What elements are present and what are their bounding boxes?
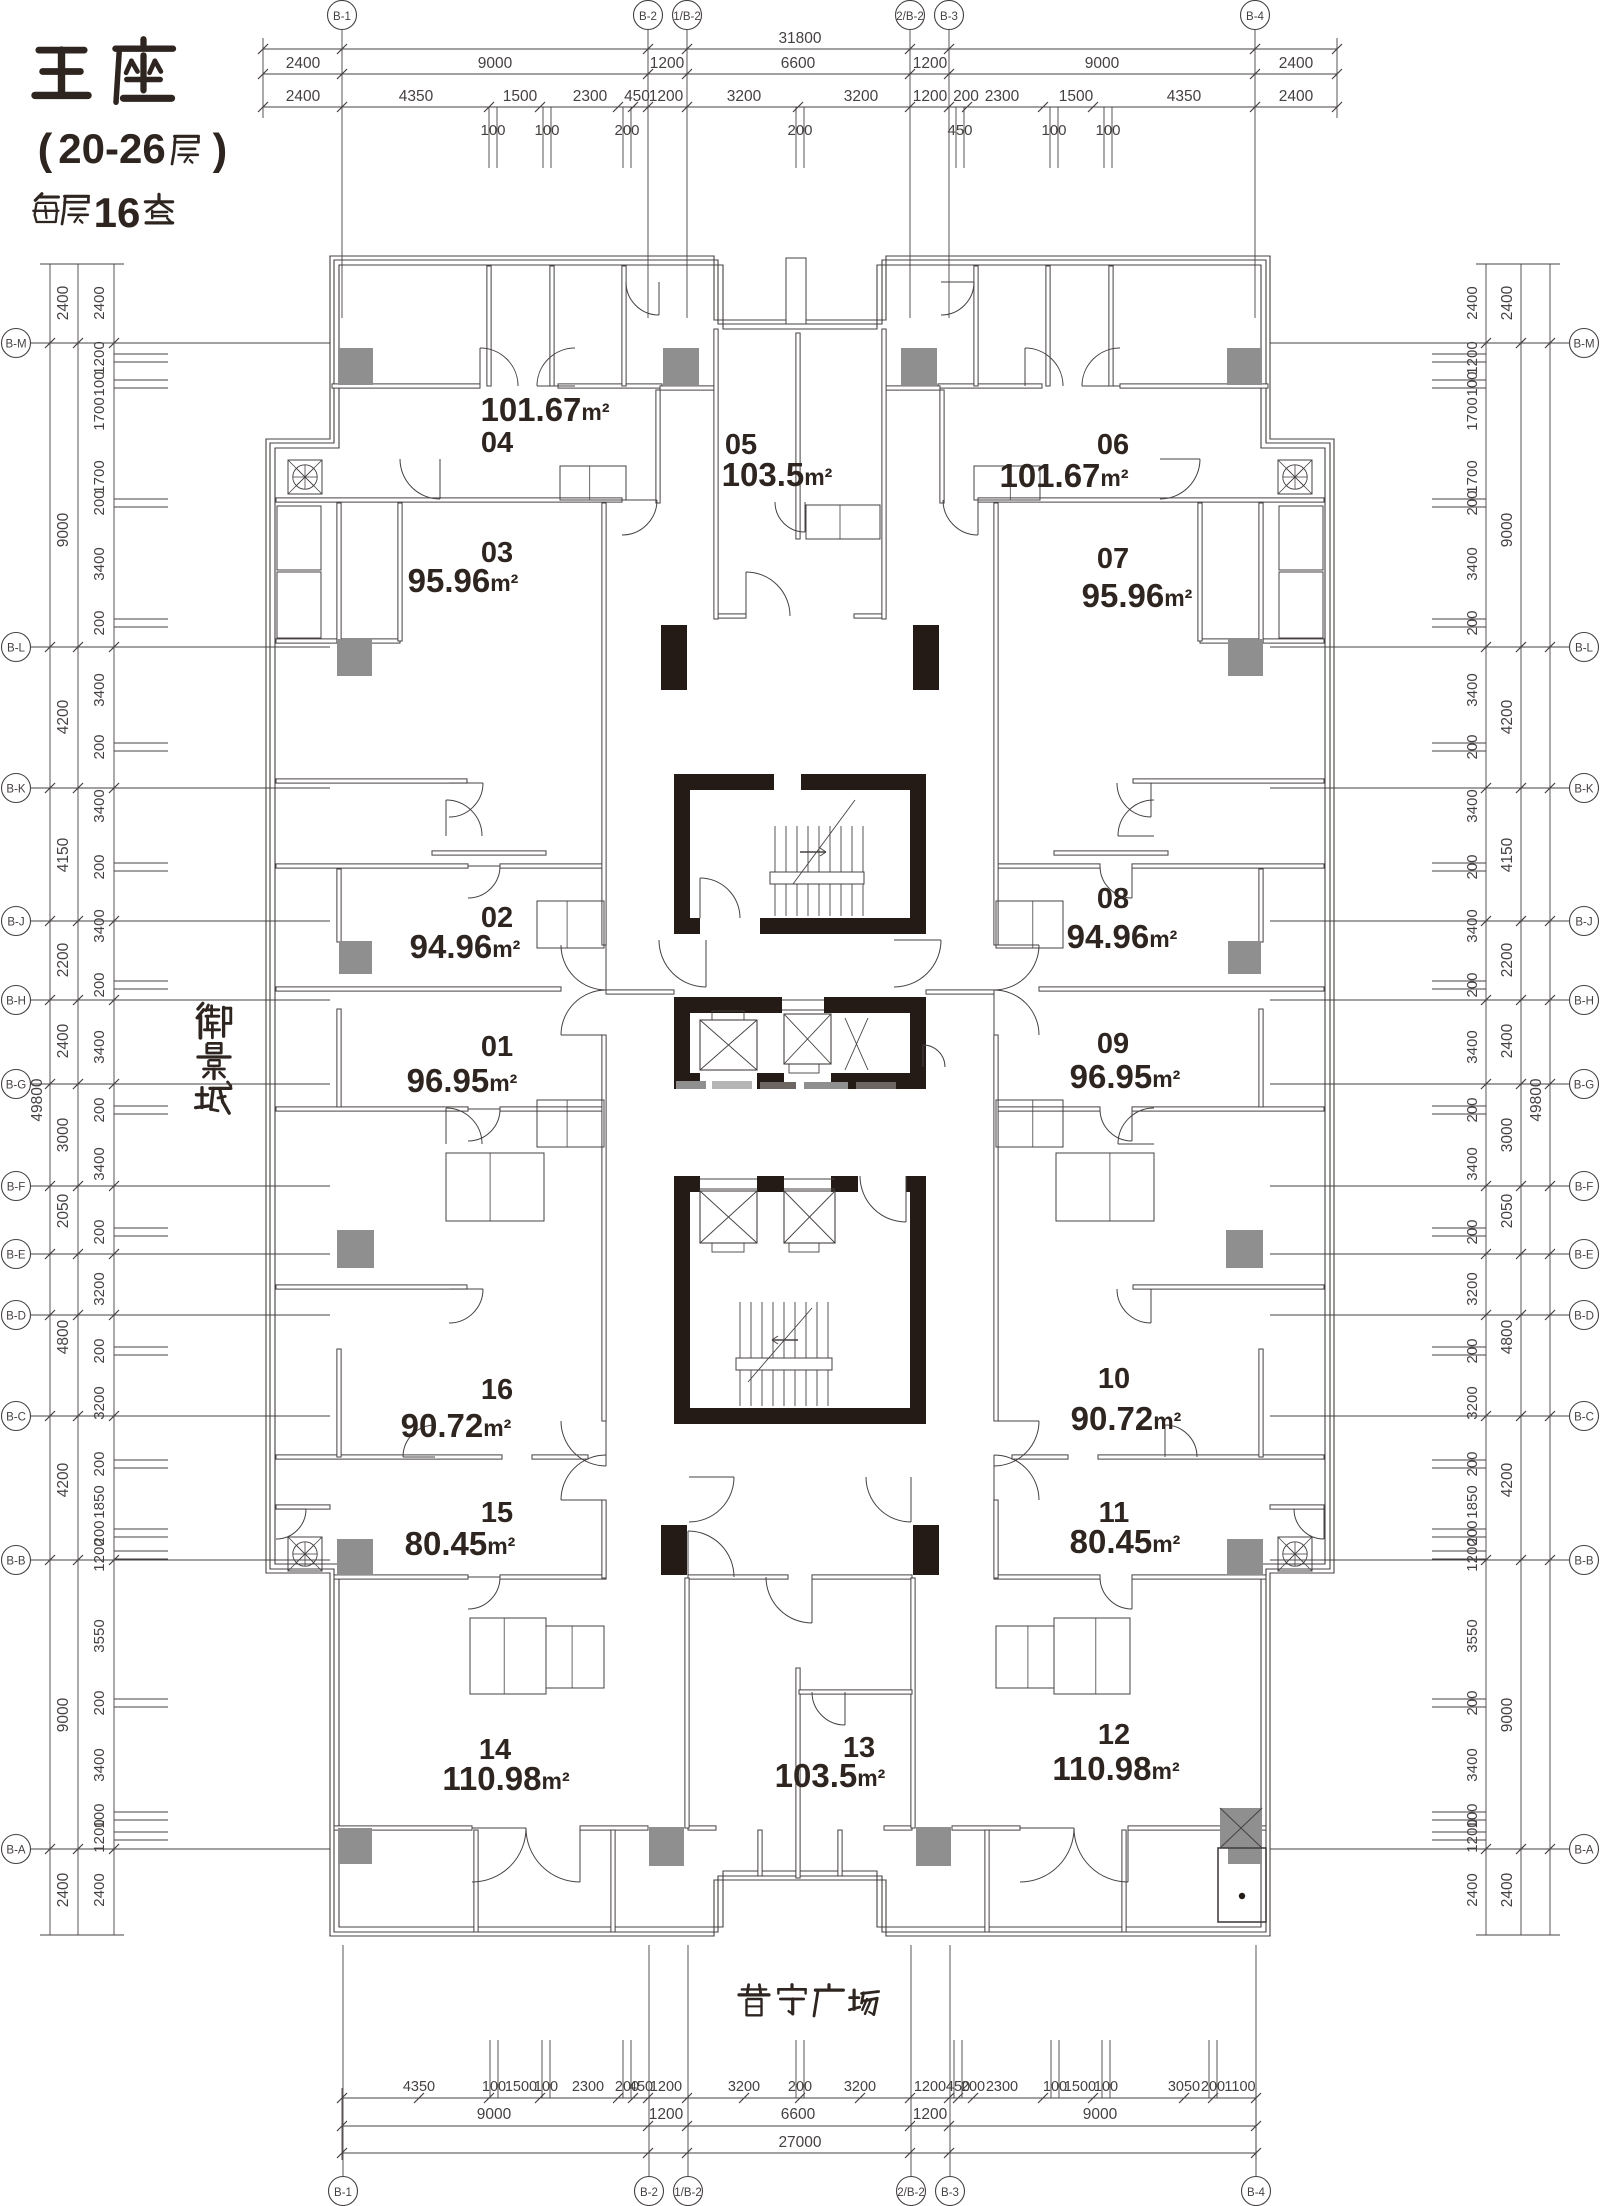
svg-text:200: 200	[91, 1219, 108, 1244]
svg-text:B-G: B-G	[1574, 1080, 1595, 1092]
svg-text:08: 08	[1097, 883, 1129, 915]
svg-text:4350: 4350	[1167, 88, 1202, 105]
svg-text:3400: 3400	[91, 1030, 108, 1063]
svg-text:200: 200	[953, 88, 979, 105]
svg-text:4150: 4150	[1499, 837, 1516, 872]
svg-text:4350: 4350	[403, 2079, 435, 2095]
svg-text:1700: 1700	[1464, 460, 1481, 493]
svg-text:200: 200	[91, 1690, 108, 1715]
svg-text:2400: 2400	[1464, 1873, 1481, 1906]
svg-text:200: 200	[788, 2079, 812, 2095]
svg-text:200: 200	[1464, 972, 1481, 997]
svg-text:1200: 1200	[1464, 341, 1481, 374]
svg-text:2200: 2200	[1499, 942, 1516, 977]
svg-text:4200: 4200	[1499, 1462, 1516, 1497]
svg-text:3200: 3200	[728, 2079, 760, 2095]
svg-text:B-J: B-J	[1575, 917, 1592, 929]
svg-text:1200: 1200	[91, 1538, 108, 1571]
svg-text:2400: 2400	[55, 285, 72, 320]
svg-text:B-L: B-L	[1575, 643, 1594, 655]
svg-text:B-M: B-M	[1573, 339, 1594, 351]
svg-text:9000: 9000	[1083, 2106, 1118, 2123]
svg-text:200: 200	[961, 2079, 985, 2095]
svg-text:100: 100	[1041, 122, 1066, 139]
svg-text:100: 100	[1095, 122, 1120, 139]
svg-text:2300: 2300	[985, 88, 1020, 105]
svg-text:B-H: B-H	[6, 996, 26, 1008]
svg-text:2/B-2: 2/B-2	[896, 11, 924, 23]
svg-text:1200: 1200	[650, 55, 685, 72]
svg-text:B-1: B-1	[334, 2187, 352, 2199]
svg-text:200: 200	[91, 972, 108, 997]
svg-text:1200: 1200	[649, 88, 684, 105]
svg-text:B-H: B-H	[1574, 996, 1594, 1008]
svg-text:4800: 4800	[55, 1319, 72, 1354]
svg-text:3400: 3400	[1464, 1030, 1481, 1063]
svg-text:3200: 3200	[1464, 1386, 1481, 1419]
svg-text:2300: 2300	[573, 88, 608, 105]
svg-text:10: 10	[1098, 1363, 1130, 1395]
svg-text:16: 16	[94, 189, 141, 236]
svg-text:100: 100	[1464, 371, 1481, 396]
svg-text:200: 200	[1464, 490, 1481, 515]
svg-text:200: 200	[1464, 734, 1481, 759]
svg-text:1200: 1200	[913, 88, 948, 105]
svg-text:B-4: B-4	[1247, 2187, 1266, 2199]
svg-text:100: 100	[480, 122, 505, 139]
svg-text:2400: 2400	[91, 1873, 108, 1906]
svg-text:3200: 3200	[1464, 1272, 1481, 1305]
svg-text:9000: 9000	[1499, 512, 1516, 547]
svg-text:1500: 1500	[1064, 2079, 1096, 2095]
svg-text:4350: 4350	[399, 88, 434, 105]
svg-text:2/B-2: 2/B-2	[897, 2187, 925, 2199]
svg-text:200: 200	[1464, 854, 1481, 879]
svg-text:): )	[213, 125, 228, 174]
svg-text:1200: 1200	[913, 2106, 948, 2123]
svg-text:3400: 3400	[1464, 673, 1481, 706]
svg-text:B-E: B-E	[1574, 1250, 1594, 1262]
svg-text:100: 100	[1094, 2079, 1118, 2095]
svg-text:3200: 3200	[727, 88, 762, 105]
svg-text:3050: 3050	[1168, 2079, 1200, 2095]
svg-text:2300: 2300	[986, 2079, 1018, 2095]
svg-text:3200: 3200	[844, 2079, 876, 2095]
svg-text:200: 200	[91, 490, 108, 515]
svg-text:2400: 2400	[1464, 286, 1481, 319]
svg-text:B-E: B-E	[6, 1250, 26, 1262]
svg-text:16: 16	[481, 1374, 513, 1406]
svg-text:100: 100	[91, 371, 108, 396]
svg-text:450: 450	[947, 122, 972, 139]
svg-text:2400: 2400	[1499, 1023, 1516, 1058]
svg-text:2200: 2200	[55, 942, 72, 977]
svg-text:2400: 2400	[1279, 55, 1314, 72]
svg-text:1850: 1850	[1464, 1485, 1481, 1518]
svg-text:B-4: B-4	[1246, 11, 1265, 23]
svg-text:3400: 3400	[1464, 909, 1481, 942]
svg-text:27000: 27000	[778, 2134, 821, 2151]
svg-text:09: 09	[1097, 1028, 1129, 1060]
svg-text:1200: 1200	[650, 2079, 682, 2095]
svg-text:3550: 3550	[1464, 1619, 1481, 1652]
svg-text:2400: 2400	[1279, 88, 1314, 105]
svg-text:2050: 2050	[1499, 1193, 1516, 1228]
svg-text:B-1: B-1	[333, 11, 351, 23]
svg-text:B-D: B-D	[6, 1311, 26, 1323]
svg-text:07: 07	[1097, 543, 1129, 575]
svg-text:3400: 3400	[91, 789, 108, 822]
svg-text:B-2: B-2	[639, 11, 657, 23]
svg-text:200: 200	[91, 1451, 108, 1476]
svg-text:200: 200	[91, 734, 108, 759]
svg-text:200: 200	[91, 1097, 108, 1122]
svg-text:1850: 1850	[91, 1485, 108, 1518]
svg-text:1200: 1200	[1464, 1538, 1481, 1571]
svg-text:2400: 2400	[91, 286, 108, 319]
svg-text:06: 06	[1097, 429, 1129, 461]
svg-text:1200: 1200	[91, 1819, 108, 1852]
svg-text:100: 100	[534, 122, 559, 139]
svg-text:3400: 3400	[91, 1147, 108, 1180]
svg-text:2300: 2300	[572, 2079, 604, 2095]
svg-text:B-G: B-G	[6, 1080, 27, 1092]
svg-text:1700: 1700	[1464, 397, 1481, 430]
svg-text:9000: 9000	[1499, 1697, 1516, 1732]
svg-text:9000: 9000	[1085, 55, 1120, 72]
svg-text:49800: 49800	[29, 1078, 46, 1121]
svg-text:1200: 1200	[1464, 1819, 1481, 1852]
svg-text:3400: 3400	[1464, 547, 1481, 580]
svg-text:B-F: B-F	[1575, 1182, 1594, 1194]
svg-text:4150: 4150	[55, 837, 72, 872]
svg-text:2400: 2400	[55, 1872, 72, 1907]
svg-text:200: 200	[1464, 610, 1481, 635]
svg-text:2400: 2400	[286, 88, 321, 105]
svg-text:200: 200	[1464, 1338, 1481, 1363]
svg-text:12: 12	[1098, 1719, 1130, 1751]
svg-text:200: 200	[1464, 1451, 1481, 1476]
svg-text:200: 200	[1464, 1219, 1481, 1244]
svg-text:B-C: B-C	[1574, 1412, 1594, 1424]
svg-text:1/B-2: 1/B-2	[674, 2187, 702, 2199]
svg-text:9000: 9000	[55, 1697, 72, 1732]
svg-text:1700: 1700	[91, 460, 108, 493]
svg-text:B-2: B-2	[640, 2187, 658, 2199]
svg-text:B-J: B-J	[7, 917, 24, 929]
svg-text:3400: 3400	[1464, 1748, 1481, 1781]
svg-text:200: 200	[1464, 1097, 1481, 1122]
svg-text:20-26: 20-26	[58, 125, 165, 172]
svg-text:3400: 3400	[91, 1748, 108, 1781]
svg-text:4200: 4200	[55, 1462, 72, 1497]
svg-text:B-A: B-A	[1574, 1845, 1594, 1857]
svg-text:B-K: B-K	[6, 784, 26, 796]
svg-text:1500: 1500	[1059, 88, 1094, 105]
svg-text:200: 200	[1464, 1690, 1481, 1715]
svg-text:200: 200	[91, 854, 108, 879]
svg-text:9000: 9000	[55, 512, 72, 547]
svg-text:B-M: B-M	[5, 339, 26, 351]
svg-text:9000: 9000	[478, 55, 513, 72]
svg-text:3400: 3400	[91, 547, 108, 580]
svg-text:1200: 1200	[91, 341, 108, 374]
svg-text:3200: 3200	[91, 1272, 108, 1305]
svg-text:(: (	[38, 125, 53, 174]
svg-text:4800: 4800	[1499, 1319, 1516, 1354]
svg-text:3550: 3550	[91, 1619, 108, 1652]
svg-text:1200: 1200	[649, 2106, 684, 2123]
svg-text:200: 200	[1201, 2079, 1225, 2095]
svg-text:200: 200	[614, 122, 639, 139]
svg-text:B-C: B-C	[6, 1412, 26, 1424]
svg-text:B-3: B-3	[941, 2187, 959, 2199]
svg-text:3400: 3400	[91, 909, 108, 942]
svg-text:3400: 3400	[91, 673, 108, 706]
svg-text:B-A: B-A	[6, 1845, 26, 1857]
svg-text:1200: 1200	[914, 2079, 946, 2095]
svg-text:3000: 3000	[55, 1117, 72, 1152]
svg-text:B-3: B-3	[940, 11, 958, 23]
svg-text:1700: 1700	[91, 397, 108, 430]
svg-text:200: 200	[91, 610, 108, 635]
svg-text:31800: 31800	[778, 30, 821, 47]
svg-text:1500: 1500	[505, 2079, 537, 2095]
svg-text:100: 100	[482, 2079, 506, 2095]
svg-text:01: 01	[481, 1031, 513, 1063]
svg-text:B-D: B-D	[1574, 1311, 1594, 1323]
svg-text:B-L: B-L	[7, 643, 26, 655]
svg-text:B-B: B-B	[1574, 1556, 1594, 1568]
svg-text:1500: 1500	[503, 88, 538, 105]
svg-text:B-F: B-F	[7, 1182, 26, 1194]
svg-text:100: 100	[534, 2079, 558, 2095]
svg-text:200: 200	[91, 1338, 108, 1363]
svg-text:1/B-2: 1/B-2	[673, 11, 701, 23]
svg-text:6600: 6600	[781, 2106, 816, 2123]
svg-text:B-K: B-K	[1574, 784, 1594, 796]
svg-text:6600: 6600	[781, 55, 816, 72]
svg-text:2400: 2400	[1499, 1872, 1516, 1907]
svg-text:3200: 3200	[844, 88, 879, 105]
svg-text:3400: 3400	[1464, 789, 1481, 822]
svg-text:2050: 2050	[55, 1193, 72, 1228]
svg-text:1100: 1100	[1224, 2079, 1255, 2095]
svg-text:9000: 9000	[477, 2106, 512, 2123]
svg-text:B-B: B-B	[6, 1556, 26, 1568]
svg-text:3200: 3200	[91, 1386, 108, 1419]
svg-text:200: 200	[787, 122, 812, 139]
svg-text:04: 04	[481, 427, 513, 459]
svg-text:49800: 49800	[1528, 1078, 1545, 1121]
svg-text:1200: 1200	[913, 55, 948, 72]
svg-text:4200: 4200	[1499, 699, 1516, 734]
svg-text:4200: 4200	[55, 699, 72, 734]
svg-text:2400: 2400	[55, 1023, 72, 1058]
svg-text:2400: 2400	[1499, 285, 1516, 320]
svg-text:2400: 2400	[286, 55, 321, 72]
svg-text:3400: 3400	[1464, 1147, 1481, 1180]
svg-text:3000: 3000	[1499, 1117, 1516, 1152]
